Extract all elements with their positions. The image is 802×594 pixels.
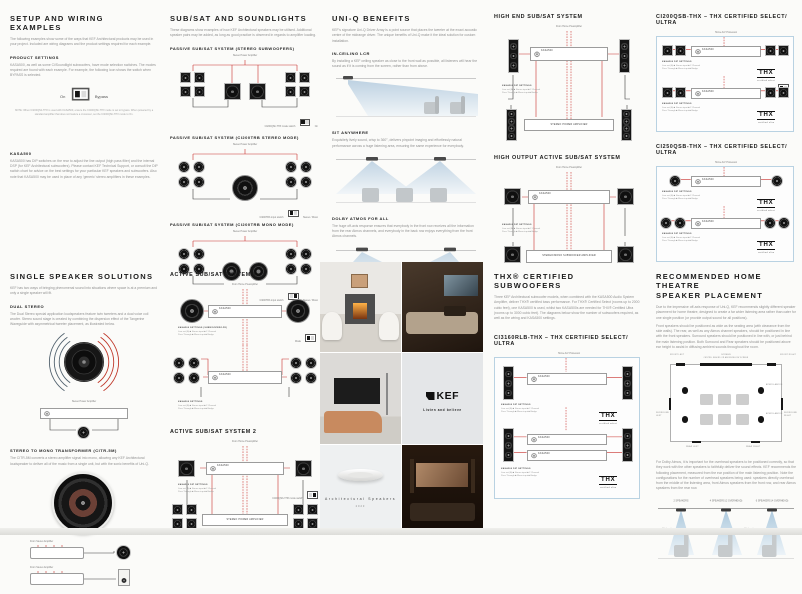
photo-collage: KEF Listen and believe Architectural Spe… (320, 262, 483, 535)
processor-label: Home A/V Processor (494, 352, 644, 355)
amp-name: KASA500 (217, 464, 229, 467)
active2-heading: ACTIVE SUB/SAT SYSTEM 2 (170, 429, 320, 435)
thx-speaker-icon (503, 428, 514, 462)
seat (700, 414, 713, 425)
amp-name: KASA500 (219, 373, 231, 376)
diagram-high-end-subsat: From Home Preamplifier KASA500 KASA500 D… (494, 25, 644, 147)
highend-heading: HIGH END SUB/SAT SYSTEM (494, 14, 644, 20)
speaker-icon (662, 45, 673, 56)
stereo-power-amp: STEREO POWER AMPLIFIER (524, 119, 614, 131)
kasa500-amp: KASA500 (208, 305, 282, 318)
dual-stereo-wiring: Stereo Power Amplifier (10, 400, 158, 442)
thx-speaker-icon (621, 109, 632, 141)
preamp-label: From Home Preamplifier (494, 166, 644, 169)
speaker-group-left (662, 45, 686, 56)
speaker-icon (765, 87, 776, 98)
bypass-switch-row: On Bypass (10, 85, 158, 103)
thx-logo: THX certified ultra (599, 468, 617, 489)
screen-bar (700, 363, 752, 366)
kef-logo: KEF (402, 387, 483, 405)
kasa500-amp: KASA500 (691, 46, 761, 57)
thx-text: THX (757, 69, 775, 78)
speaker-icon (178, 161, 190, 173)
speaker-icon (285, 248, 297, 260)
amp-name: KASA500 (702, 178, 714, 181)
section-active-subsat: ACTIVE SUB/SAT SYSTEM 1 From Home Preamp… (170, 272, 320, 540)
intro-paragraph: Three KEF Architectural subwoofer models… (494, 295, 644, 321)
surround-right-speaker (781, 398, 784, 410)
amp-name: KASA500 (541, 49, 553, 52)
speaker-group-right (285, 248, 312, 275)
subwoofer-icon (249, 83, 266, 100)
section-uniq-benefits: UNI-Q BENEFITS KEF's signature Uni-Q Dri… (332, 14, 480, 298)
subwoofer-icon (232, 175, 258, 201)
section-heading: UNI-Q BENEFITS (332, 14, 480, 23)
section-subsat-soundlights: SUB/SAT AND SOUNDLIGHTS These diagrams s… (170, 14, 320, 298)
kef-logo-tile: KEF Listen and believe (402, 353, 483, 444)
photo-home-theatre (402, 262, 483, 352)
speaker-icon (299, 86, 310, 97)
section-high-end-subsat: HIGH END SUB/SAT SYSTEM From Home Preamp… (494, 14, 644, 270)
picture-frame (351, 274, 368, 288)
ci200-heading: CI200QSB-THX – THX CERTIFIED SELECT/ ULT… (656, 14, 796, 26)
speaker-icon (285, 176, 297, 188)
kasa500-amp: KASA500 (527, 373, 607, 385)
mode-caption: CI200QSb-THX mode switch (272, 486, 318, 504)
placement-paragraph-3: For Dolby Atmos, it is important for the… (656, 460, 796, 492)
dip-settings-caption: KASA500 DIP SETTINGS Line out (A) ■ Ster… (662, 191, 700, 202)
processor-label: Home A/V Processor (656, 31, 796, 34)
section-heading: SINGLE SPEAKER SOLUTIONS (10, 272, 158, 281)
subwoofer-icon (504, 188, 521, 205)
dip-line: Pass Through ■ Mono input ■ Bridge (662, 198, 700, 202)
speaker-icon (300, 176, 312, 188)
speaker-icon (778, 45, 789, 56)
speaker-icon (674, 217, 686, 229)
diagram1-label: PASSIVE SUB/SAT SYSTEM (STEREO SUBWOOFER… (170, 46, 320, 51)
overhead-speaker-dot (682, 387, 688, 393)
tv-screen (334, 378, 380, 404)
placement-paragraph-2: Front speakers should be positioned as w… (656, 324, 796, 350)
subwoofer-icon (295, 460, 312, 477)
thx-logo: THX certified ultra (757, 103, 775, 124)
mode-switch-icon (72, 88, 89, 100)
rear-right-speaker (751, 441, 760, 444)
dip-settings-caption: KASA500 DIP SETTINGS Line out (A) ■ Ster… (502, 85, 540, 96)
section-heading: THX® CERTIFIED SUBWOOFERS (494, 272, 644, 290)
sit-anywhere-body: Exquisitely lively sound, crisp to 360°,… (332, 138, 480, 149)
subwoofer-amp: STEREO/MONO SUBWOOFER AMPLIFIER (526, 250, 612, 263)
diagram-active2: From Home Preamplifier KASA500 KASA500 D… (170, 440, 320, 540)
amp-knob-icon (695, 179, 701, 185)
section-heading-line2: SPEAKER PLACEMENT (656, 291, 796, 300)
speaker-group-right (765, 87, 789, 98)
stereo-power-amp: STEREO POWER AMPLIFIER (202, 514, 288, 526)
atmos-label: ATMOS ABOVE (766, 413, 783, 416)
shelf (386, 373, 388, 415)
thx-text: THX (757, 241, 775, 250)
sideview-label-1: 2 SPEAKERS (674, 499, 689, 502)
kef-wordmark: KEF (437, 390, 460, 402)
product-settings-note: NOTE: When CI200QSb-THX is used with KAS… (10, 109, 158, 117)
speaker-group-left (173, 357, 200, 384)
amp-label: Stereo Power Amplifier (170, 143, 320, 146)
kasa500-heading: KASA500 (10, 151, 158, 156)
speaker-icon (178, 248, 190, 260)
atmos-label: ATMOS ABOVE (766, 384, 783, 387)
kasa500-amp: KASA500 (528, 190, 610, 204)
seat (736, 414, 749, 425)
sofa (410, 503, 475, 521)
seat (700, 394, 713, 405)
diagram-passive-trb-stereo: Stereo Power Amplifier CI200TRb input sw… (170, 143, 320, 215)
citr-wiring-row-1: From Stereo Amplifier (10, 540, 158, 566)
thx-speaker-icon (503, 366, 514, 400)
dip-line: Pass Through ■ Mono input ■ Bridge (662, 110, 700, 114)
thx-subtext: certified ultra (757, 252, 775, 254)
dual-stereo-body: The Dual Stereo special application loud… (10, 312, 158, 328)
screen-label: SCREEN CENTRE: BEHIND OR ABOVE/BELOW SCR… (686, 354, 766, 359)
section-ci200qsb-thx: CI200QSB-THX – THX CERTIFIED SELECT/ ULT… (656, 14, 796, 262)
amp-knob-icon (531, 437, 537, 443)
dip-line: Pass Through ■ Mono input ■ Bridge (178, 491, 216, 495)
diagram2-label: PASSIVE SUB/SAT SYSTEM (CI200TRB STEREO … (170, 135, 320, 140)
thx-text: THX (599, 476, 617, 485)
diagram-ci200qsb: KASA500 KASA500 DIP SETTINGS Line out (A… (656, 36, 794, 132)
amp-label: Stereo Power Amplifier (170, 54, 320, 57)
speaker-group-right (290, 357, 317, 384)
amp-name: KASA500 (538, 452, 550, 455)
speaker-icon (778, 87, 789, 98)
front-right-speaker (767, 363, 776, 366)
speaker-group-right (765, 45, 789, 56)
intro-paragraph: These diagrams show examples of how KEF … (170, 28, 320, 39)
preamp-label: From Home Preamplifier (170, 283, 320, 286)
speaker-icon (186, 504, 197, 515)
dip-settings-caption: KASA500 DIP SETTINGS Line out (A) ■ Ster… (662, 61, 700, 72)
citr-transformer (30, 573, 84, 585)
mode-switch-icon (288, 210, 299, 218)
thx-text: THX (757, 199, 775, 208)
atmos-heading: DOLBY ATMOS FOR ALL (332, 216, 480, 221)
cabinet-speaker-icon (118, 569, 130, 586)
rear-left-label: REAR LEFT (686, 446, 699, 449)
stereo-amp (40, 408, 128, 419)
diagram-active1-subs: From Home Preamplifier KASA500 KASA500 S… (170, 283, 320, 345)
dual-stereo-heading: DUAL STEREO (10, 304, 158, 309)
diagram-active1-sats: KASA500 KASA500 SETTINGS Line out (A) ■ … (170, 345, 320, 419)
speaker-group-right (285, 161, 312, 188)
room-layout-diagram: FRONT LEFT SCREEN CENTRE: BEHIND OR ABOV… (656, 354, 796, 454)
speaker-icon (116, 545, 131, 560)
photo-cinema (402, 445, 483, 535)
speaker-group-right (764, 217, 790, 229)
speaker-icon (285, 161, 297, 173)
amp-label: Stereo Power Amplifier (170, 230, 320, 233)
thx-speaker-icon (622, 428, 633, 462)
dip-settings-caption: KASA500 DIP SETTINGS Line out (A) ■ Ster… (662, 233, 700, 244)
speaker-icon (765, 45, 776, 56)
amp-name: KASA500 (539, 192, 551, 195)
speaker-icon (290, 357, 302, 369)
citr-heading: STEREO TO MONO TRANSFORMER (CITR-5M) (10, 448, 158, 453)
dip-line: Pass Through ■ Mono input ■ Bridge (502, 231, 540, 235)
section-heading: SUB/SAT AND SOUNDLIGHTS (170, 14, 320, 23)
amp-knob-icon (532, 194, 538, 200)
speaker-group-left (660, 217, 686, 229)
diagram2-caption: CI200TRb input switch Stereo / Mono (259, 205, 318, 223)
lcr-speaker-icon (619, 39, 630, 73)
preamp-label: From Home Preamplifier (170, 440, 320, 443)
amp-knob-icon (695, 49, 701, 55)
sit-anywhere-illustration (332, 152, 480, 204)
seat (718, 414, 731, 425)
dip-title: KASA500 SETTINGS (SUBWOOFER/LFE) (178, 327, 227, 331)
dip-line: Pass Through ■ Mono input ■ Bridge (178, 334, 227, 338)
mode-switch-icon (305, 334, 316, 342)
citr-wiring-row-2: From Stereo Amplifier (10, 566, 158, 594)
section-thx-subwoofers: THX® CERTIFIED SUBWOOFERS Three KEF Arch… (494, 272, 644, 499)
kasa500-body: KASA500 has DIP switches on the rear to … (10, 159, 158, 180)
section-heading: SETUP AND WIRING EXAMPLES (10, 14, 158, 32)
caption-text: CI200QSb-THX mode switch (265, 125, 296, 128)
kasa500-amp: KASA500 (208, 371, 282, 384)
screen-label-line2: CENTRE: BEHIND OR ABOVE/BELOW SCREEN (686, 357, 766, 359)
thx-subtext: certified ultra (599, 487, 617, 489)
highoutput-heading: HIGH OUTPUT ACTIVE SUB/SAT SYSTEM (494, 155, 644, 161)
amp-name: KASA500 (538, 375, 550, 378)
preamp-label: From Home Preamplifier (494, 25, 644, 28)
citr-body: The CITR-5M converts a stereo amplifier … (10, 456, 158, 467)
speaker-icon (778, 217, 790, 229)
sofa (324, 411, 382, 433)
amp-knob-icon (695, 221, 701, 227)
amp-name: STEREO POWER AMPLIFIER (203, 515, 287, 525)
atmos-body: The huge off-axis response ensures that … (332, 224, 480, 240)
mode-label: Mode (295, 340, 301, 343)
rear-right-label: REAR RIGHT (746, 446, 760, 449)
dip-settings-caption: KASA500 DIP SETTINGS Line out (A) ■ Ster… (501, 468, 539, 479)
placement-paragraph-1: Due to the impressive off-axis response … (656, 305, 796, 321)
amp-knob-icon (212, 375, 218, 381)
caption-mode: Stereo / Mono (303, 216, 318, 219)
kasa500-amp: KASA500 (527, 434, 607, 445)
speaker-column (471, 459, 475, 493)
switch-bypass-label: Bypass (95, 94, 108, 99)
speaker-group-left (180, 72, 205, 97)
surround-left-speaker (669, 398, 672, 410)
dip-settings-caption: KASA500 DIP SETTINGS Line out (A) ■ Ster… (662, 103, 700, 114)
sideview-label-2: 4 SPEAKERS (2 OVERHEAD) (710, 499, 743, 502)
seat (718, 394, 731, 405)
dip-line: Pass Through ■ Mono input ■ Bridge (501, 411, 539, 415)
speaker-icon (305, 372, 317, 384)
thx-speaker-icon (506, 109, 517, 141)
subwoofer-icon (617, 188, 634, 205)
intro-paragraph: The following examples show some of the … (10, 37, 158, 48)
subwoofer-icon (178, 460, 195, 477)
speaker-icon (300, 161, 312, 173)
speaker-icon (178, 176, 190, 188)
sit-anywhere-heading: SIT ANYWHERE (332, 130, 480, 135)
subwoofer-icon (286, 299, 310, 323)
sofa (406, 312, 478, 334)
thx-subtext: certified ultra (757, 122, 775, 124)
sideview-label-3: 6 SPEAKERS (4 OVERHEAD) (756, 499, 789, 502)
speaker-icon (194, 86, 205, 97)
subwoofer-icon (504, 246, 521, 263)
speaker-icon (180, 86, 191, 97)
amp-label: Stereo Power Amplifier (10, 400, 158, 403)
thx-logo: THX certified ultra (757, 233, 775, 254)
speaker-icon (193, 161, 205, 173)
amp-name: KASA500 (219, 307, 231, 310)
speaker-icon (77, 426, 90, 439)
speaker-group-left (662, 87, 686, 98)
thx-speaker-icon (622, 366, 633, 400)
overhead-speaker-dot (758, 416, 764, 422)
section-heading-line1: RECOMMENDED HOME THEATRE (656, 272, 796, 290)
amp-knob-icon (44, 411, 50, 417)
speaker-icon (300, 248, 312, 260)
speaker-icon (188, 357, 200, 369)
amp-name: KASA500 (702, 48, 714, 51)
speaker-icon (173, 372, 185, 384)
dip-settings-caption: KASA500 DIP SETTINGS Line out (A) ■ Ster… (178, 484, 216, 495)
lcr-speaker-icon (508, 39, 519, 73)
amp-label: From Stereo Amplifier (30, 566, 53, 569)
speaker-icon (662, 87, 673, 98)
cover-year: 2023 (320, 505, 401, 508)
front-right-label: FRONT RIGHT (780, 354, 796, 357)
cover-tile: Architectural Speakers 2023 (320, 445, 401, 535)
ci250-heading: CI250QSB-THX – THX CERTIFIED SELECT/ ULT… (656, 144, 796, 156)
speaker-icon (285, 86, 296, 97)
surround-right-label: SURROUND RIGHT (784, 412, 796, 417)
rear-left-speaker (692, 441, 701, 444)
thx-logo: THX certified select (599, 404, 617, 425)
coaxial-driver-icon (52, 472, 114, 534)
product-settings-heading: PRODUCT SETTINGS (10, 55, 158, 60)
speaker-icon (180, 72, 191, 83)
dip-line: Pass Through ■ Mono input ■ Bridge (662, 68, 700, 72)
speaker-group-left (178, 161, 205, 188)
citr-transformer (30, 547, 84, 559)
amp-name: STEREO/MONO SUBWOOFER AMPLIFIER (527, 251, 611, 262)
amp-name: KASA500 (538, 436, 550, 439)
armchair (322, 312, 342, 340)
photo-tv-room (320, 353, 401, 444)
dip-settings-caption: KASA500 SETTINGS (SUBWOOFER/LFE) Line ou… (178, 327, 227, 338)
kasa500-amp: KASA500 (691, 176, 761, 187)
speaker-icon (675, 45, 686, 56)
diagram-high-output-active: From Home Preamplifier KASA500 KASA500 D… (494, 166, 644, 270)
switch-on-label: On (60, 94, 65, 99)
amp-knob-icon (531, 453, 537, 459)
kef-tagline: Listen and believe (402, 408, 483, 412)
kasa500-amp: KASA500 (691, 218, 761, 229)
amp-knob-icon (210, 466, 216, 472)
dip-settings-caption: KASA500 SETTINGS Line out (A) ■ Stereo i… (178, 401, 216, 412)
thx-subtext: certified select (757, 210, 775, 212)
speaker-group-left (172, 504, 197, 529)
speaker-icon (660, 217, 672, 229)
fire-glow (353, 303, 367, 319)
thx-logo: THX certified select (757, 191, 775, 212)
thx-text: THX (599, 412, 617, 421)
kasa500-amp: KASA500 (691, 88, 761, 99)
dip-settings-caption: KASA500 DIP SETTINGS Line out (A) ■ Ster… (502, 224, 540, 235)
dip-line: Pass Through ■ Mono input ■ Bridge (178, 408, 216, 412)
subwoofer-icon (180, 299, 204, 323)
speaker-icon (173, 357, 185, 369)
speaker-icon (669, 175, 681, 187)
speaker-icon (675, 87, 686, 98)
speaker-group-left (178, 248, 205, 275)
speaker-icon (193, 248, 205, 260)
cover-caption: Architectural Speakers (320, 497, 401, 501)
mode-switch-icon (300, 119, 311, 127)
brochure-spread: { "labels": { "stereo_power_amplifier": … (0, 0, 802, 535)
subwoofer-icon (224, 83, 241, 100)
dip-line: Pass Through ■ Mono input ■ Bridge (502, 92, 540, 96)
amp-knob-icon (531, 377, 537, 383)
speaker-icon (188, 372, 200, 384)
amp-label: From Stereo Amplifier (30, 540, 53, 543)
speaker-group-right (293, 504, 318, 529)
dip-settings-caption: KASA500 DIP SETTINGS Line out (A) ■ Ster… (501, 404, 539, 415)
diagram-passive-stereo-subwoofers: Stereo Power Amplifier CI200QSb-THX mode… (170, 54, 320, 128)
intro-paragraph: KEF's signature Uni-Q Driver Array is a … (332, 28, 480, 44)
armchair (379, 312, 399, 340)
speaker-icon (172, 504, 183, 515)
speaker-icon (307, 504, 318, 515)
section-single-speaker: SINGLE SPEAKER SOLUTIONS KEF has two way… (10, 272, 158, 594)
diagram-ci3160rlb: KASA500 KASA500 DIP SETTINGS Line out (A… (494, 357, 640, 499)
speaker-icon (193, 176, 205, 188)
amp-name: KASA500 (702, 90, 714, 93)
ceiling-speaker-grille (348, 472, 373, 478)
speaker-icon (293, 504, 304, 515)
diagram1-caption: CI200QSb-THX mode switch On (265, 114, 318, 132)
front-left-speaker (676, 363, 685, 366)
speaker-column (410, 459, 414, 493)
amp-knob-icon (695, 91, 701, 97)
amp-knob-icon (212, 309, 218, 315)
speaker-group-right (285, 72, 310, 97)
seat (736, 394, 749, 405)
kasa500-amp: KASA500 (206, 462, 284, 475)
section-setup-wiring: SETUP AND WIRING EXAMPLES The following … (10, 14, 158, 183)
page-edge (0, 528, 802, 535)
front-left-label: FRONT LEFT (670, 354, 684, 357)
cinema-screen (416, 463, 468, 487)
mode-switch-icon (307, 491, 318, 499)
fireplace (345, 294, 375, 324)
speaker-icon (771, 175, 783, 187)
dip-line: Pass Through ■ Mono input ■ Bridge (662, 240, 700, 244)
kasa500-amp: KASA500 (530, 47, 608, 61)
active1-heading: ACTIVE SUB/SAT SYSTEM 1 (170, 272, 320, 278)
speaker-icon (305, 357, 317, 369)
thx-subtext: certified select (599, 423, 617, 425)
diagram-ci250qsb: KASA500 KASA500 DIP SETTINGS Line out (A… (656, 166, 794, 262)
caption-text: CI200TRb input switch (259, 216, 283, 219)
photo-living-room-fireplace (320, 262, 401, 352)
cushion (444, 306, 466, 316)
amp-name: STEREO POWER AMPLIFIER (525, 120, 613, 130)
caption-text: CI200QSb-THX mode switch (272, 497, 303, 500)
